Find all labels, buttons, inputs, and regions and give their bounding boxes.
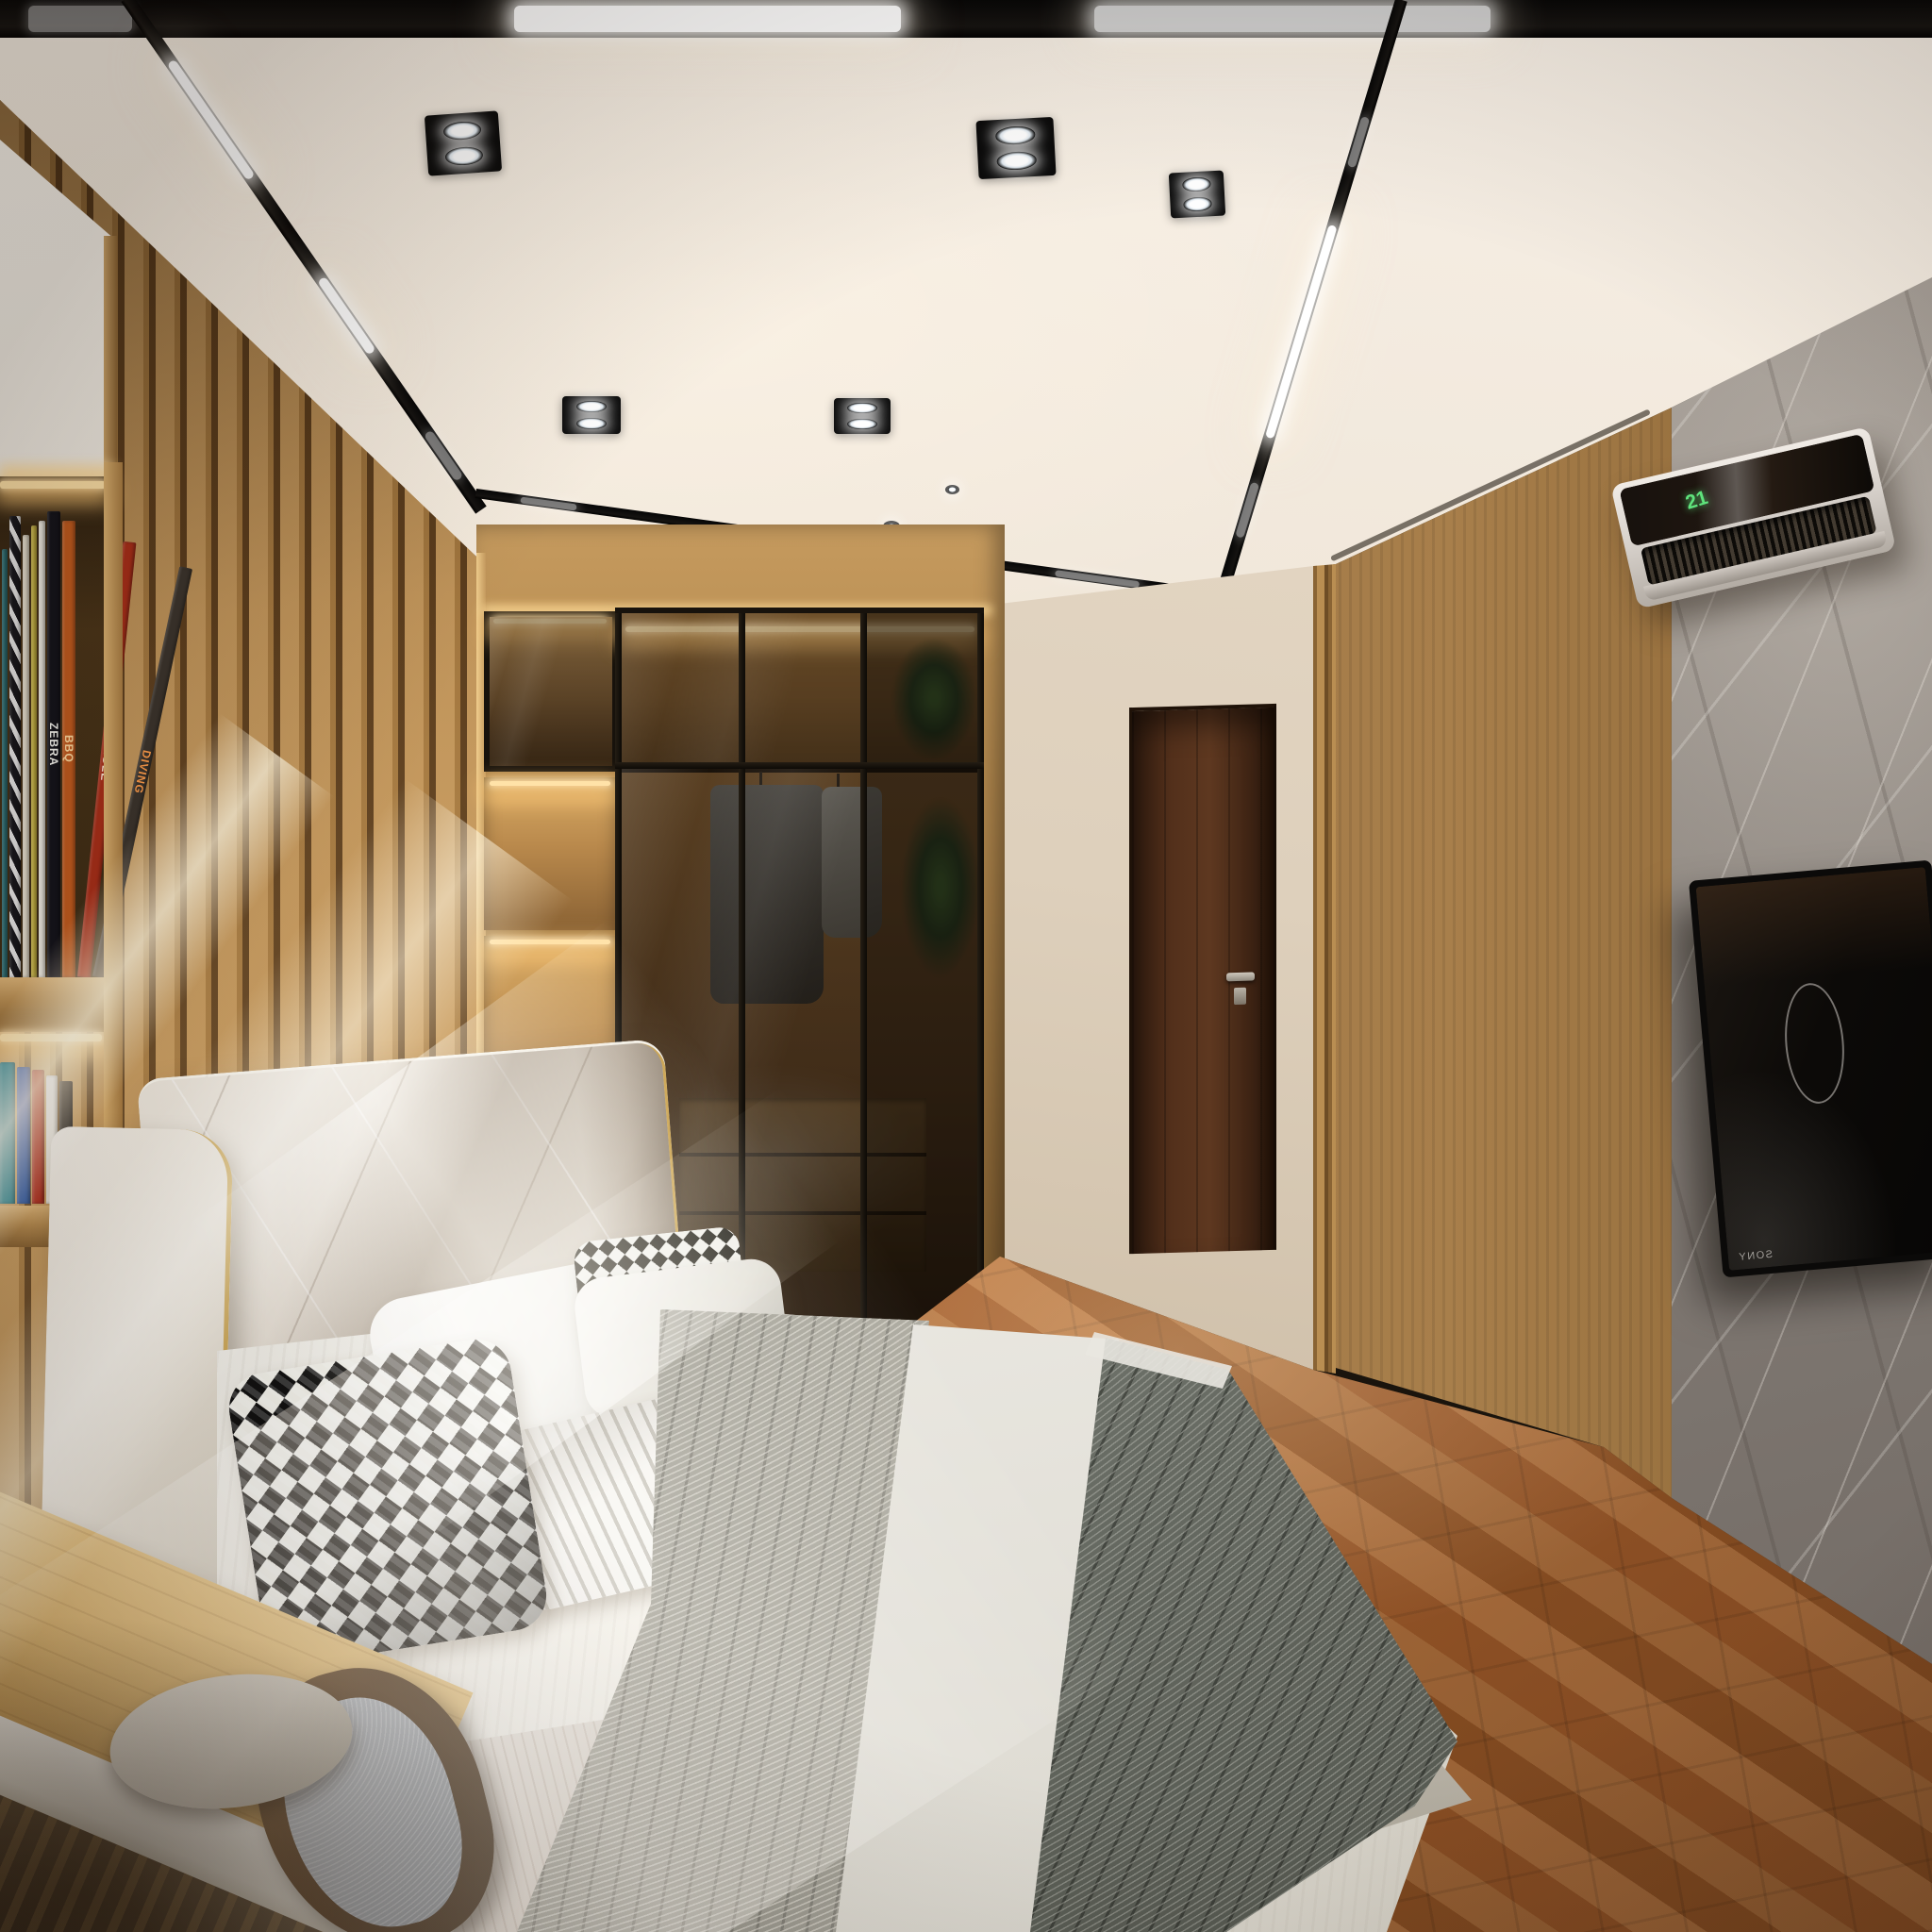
tv-brand-label: SONY <box>1737 1249 1773 1263</box>
book-row-upper: ZEBRABBQEAGLEDIVING <box>2 502 106 977</box>
door-lock-plate <box>1234 988 1246 1005</box>
ceiling-downlight <box>834 398 891 434</box>
downlight-bulb <box>444 146 484 167</box>
ceiling-track-top <box>0 0 1932 38</box>
bedroom-render: ZEBRABBQEAGLEDIVING <box>0 0 1932 1932</box>
book-spine: ZEBRA <box>47 511 60 977</box>
ceiling-downlight <box>1169 171 1225 219</box>
track-light-strip <box>514 6 901 32</box>
downlight-bulb <box>576 418 607 429</box>
book-spine <box>39 521 45 977</box>
downlight-bulb <box>1183 196 1212 211</box>
wardrobe-glass-right-dark <box>863 611 983 1326</box>
book-spine <box>23 535 29 977</box>
track-light-strip <box>28 6 132 32</box>
open-niche <box>484 777 616 930</box>
book-spine <box>0 1062 15 1204</box>
desk-chair <box>75 1641 481 1932</box>
ceiling-downlight <box>425 110 502 175</box>
downlight-bulb <box>996 151 1038 171</box>
book-title: ZEBRA <box>47 723 60 766</box>
book-spine <box>2 549 8 977</box>
ceiling-downlight <box>975 117 1056 179</box>
book-title: BBQ <box>62 735 75 763</box>
book-spine <box>32 1070 44 1204</box>
niche-led <box>490 940 611 944</box>
book-spine <box>31 525 37 977</box>
display-cabinet <box>484 611 618 772</box>
shelf-led-strip <box>0 1034 102 1041</box>
glass-frame-mullion <box>860 611 867 1326</box>
shelf-led-strip <box>0 481 106 489</box>
glass-frame-mullion <box>739 611 745 1326</box>
ceiling-downlight-round <box>945 485 959 494</box>
book-spine <box>9 516 21 977</box>
downlight-bulb <box>442 120 482 141</box>
glass-frame-mullion <box>977 611 984 1326</box>
wall-mounted-tv: SONY <box>1689 860 1932 1278</box>
tv-reflection-ring <box>1780 981 1849 1107</box>
downlight-bulb <box>1182 177 1211 192</box>
book-spine <box>17 1067 30 1204</box>
cabinet-glass <box>490 617 612 766</box>
ceiling-downlight <box>562 396 621 434</box>
track-light-strip <box>1094 6 1491 32</box>
entry-door <box>1129 704 1276 1254</box>
downlight-bulb <box>847 419 876 429</box>
downlight-bulb <box>576 401 607 412</box>
shelf-board <box>0 977 106 1032</box>
downlight-bulb <box>948 487 957 492</box>
tv-screen: SONY <box>1696 867 1932 1271</box>
downlight-bulb <box>847 403 876 413</box>
book-spine: BBQ <box>62 521 75 977</box>
door-handle <box>1226 972 1255 981</box>
downlight-bulb <box>995 125 1037 145</box>
glass-frame-rail <box>615 762 984 769</box>
glass-frame-rail <box>615 608 984 613</box>
niche-led <box>490 781 611 786</box>
